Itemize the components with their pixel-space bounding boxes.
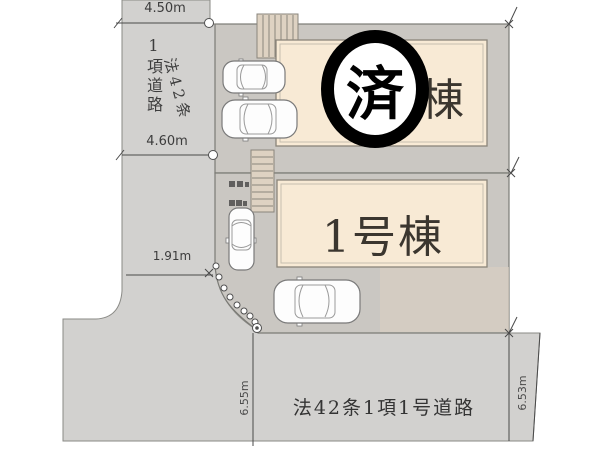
sold-stamp-text: 済 [346,47,404,131]
sold-stamp: 済 [321,30,429,148]
bottom-road-label: 法42条1項1号道路 [234,393,534,420]
car-icon-lower-vertical [226,208,256,270]
dimension-road-width-top: 4.50m [130,1,200,16]
car-icon-lower-horizontal [274,277,360,326]
dimension-setback: 1.91m [142,249,202,263]
dimension-road-width-bottom: 4.60m [132,134,202,149]
car-icon-upper-1 [223,59,285,96]
left-road-label-line1: 1項道路 [141,36,165,115]
car-icon-upper-2 [222,97,297,141]
site-plan-canvas: 4.50m 4.60m 1.91m 6.55m 6.53m 1項道路 法42条 … [0,0,600,449]
parcel-1-garden-shape [380,267,509,332]
building-1-label: 1号棟 [283,201,483,265]
stairs-icon-lower [251,150,274,212]
